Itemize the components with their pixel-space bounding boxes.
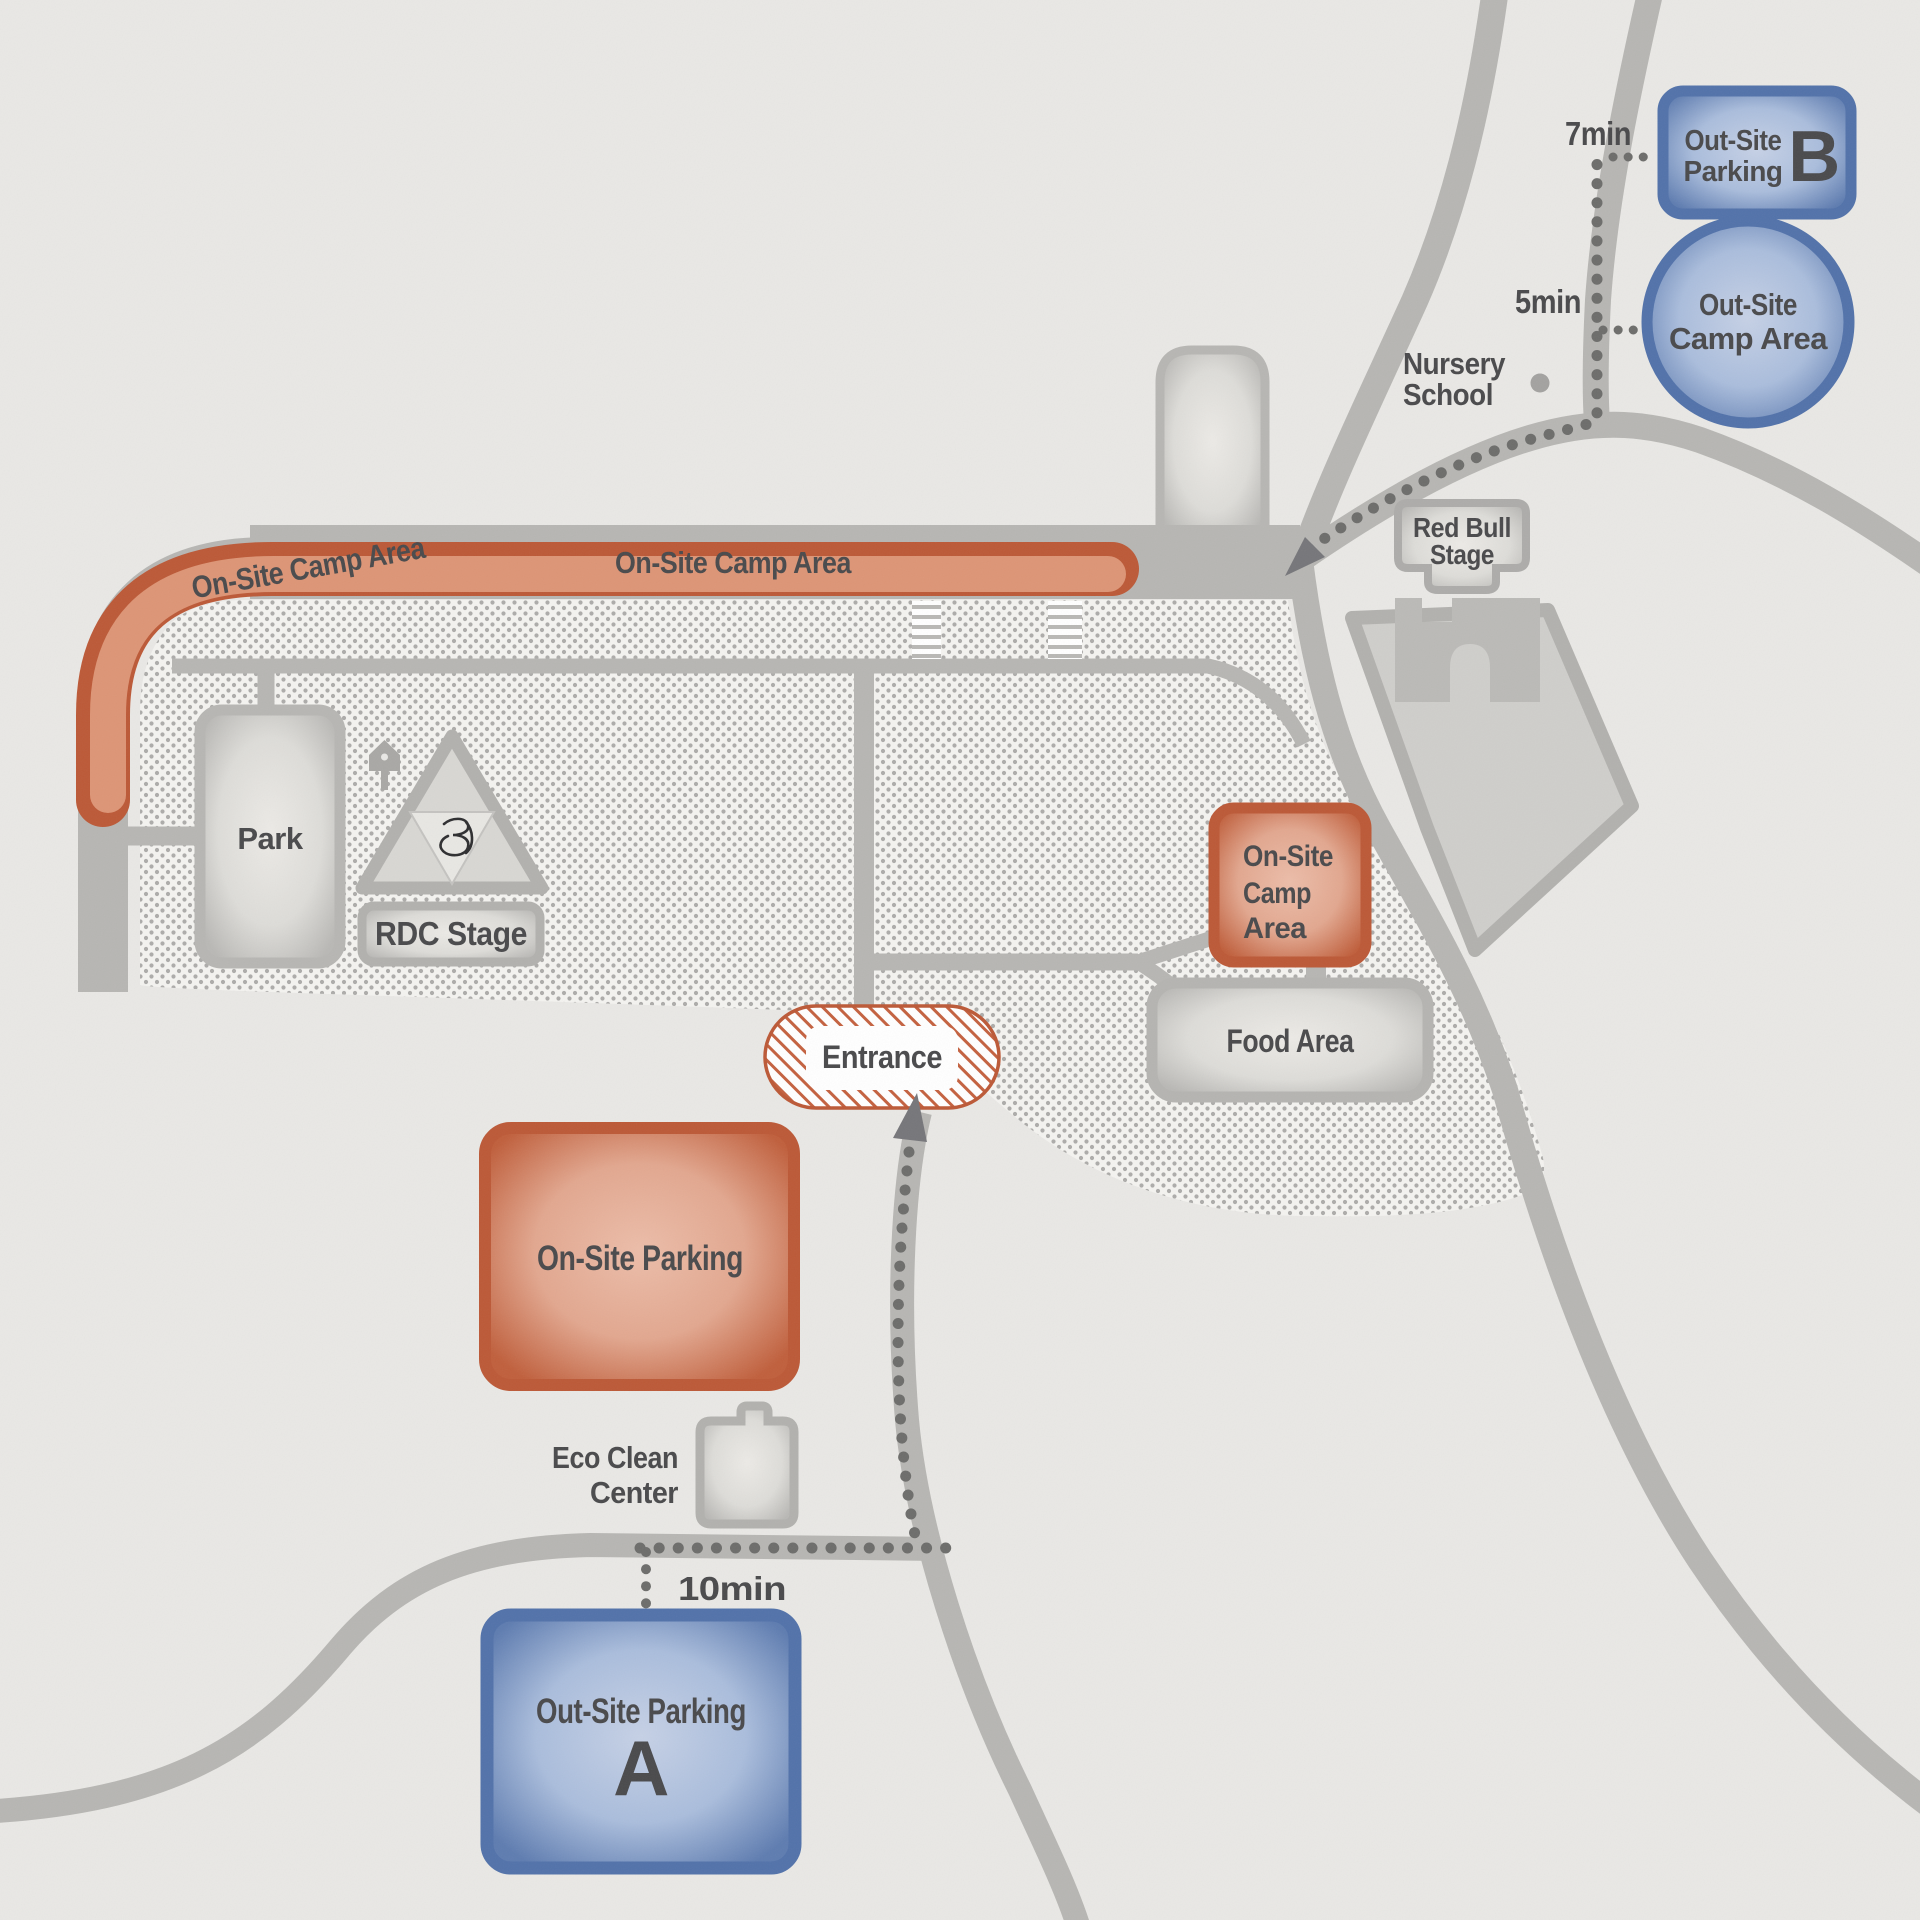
eco-clean-center-label-line2: Center (590, 1475, 678, 1510)
walk-time-7min-label: 7min (1565, 115, 1631, 152)
eco-clean-center-label-line1: Eco Clean (552, 1440, 678, 1475)
food-area-label: Food Area (1227, 1023, 1355, 1059)
zebra-crossing-icon (912, 601, 941, 659)
eco-clean-center-building (700, 1406, 794, 1524)
out-site-camp-area-label-line1: Out-Site (1699, 287, 1797, 322)
red-bull-stage-label-line2: Stage (1430, 539, 1494, 570)
out-site-parking-b-label-line1: Out-Site (1685, 125, 1782, 157)
zebra-crossing-icon (1048, 601, 1082, 659)
on-site-camp-square-label-line3: Area (1243, 912, 1307, 945)
out-site-camp-area-label-line2: Camp Area (1669, 321, 1828, 356)
festival-site-map: On-Site Camp Area On-Site Camp Area Park… (0, 0, 1920, 1920)
rdc-stage-label: RDC Stage (375, 915, 527, 952)
out-site-parking-b-label-line2: Parking (1684, 156, 1783, 188)
on-site-camp-square-label-line2: Camp (1243, 877, 1311, 910)
out-site-parking-b-letter: B (1788, 117, 1840, 197)
entrance-label: Entrance (822, 1039, 942, 1075)
building-north (1160, 350, 1265, 540)
on-site-parking-label: On-Site Parking (537, 1239, 743, 1278)
nursery-school-label-line2: School (1403, 377, 1493, 412)
park-label: Park (237, 821, 303, 856)
walk-time-10min-label: 10min (678, 1570, 786, 1607)
walk-time-5min-label: 5min (1515, 283, 1581, 320)
nursery-school-label-line1: Nursery (1403, 346, 1506, 381)
nursery-school-dot (1531, 374, 1550, 393)
on-site-camp-square-label-line1: On-Site (1243, 840, 1333, 873)
out-site-parking-a-letter: A (613, 1724, 669, 1812)
camp-band-label-right: On-Site Camp Area (615, 545, 852, 580)
